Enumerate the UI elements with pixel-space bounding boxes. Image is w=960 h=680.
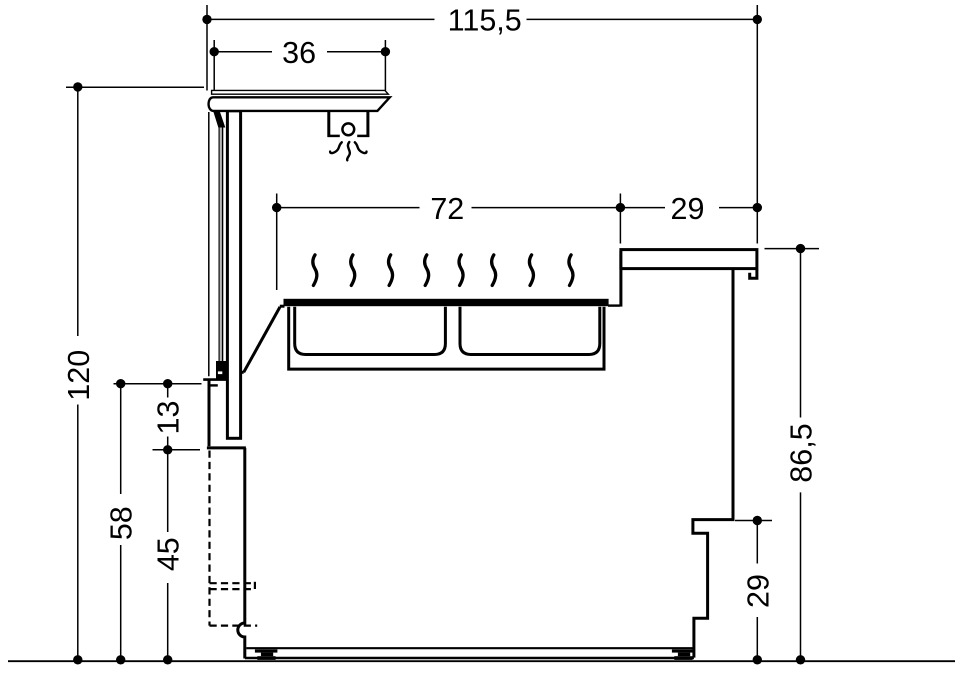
svg-text:29: 29: [741, 574, 775, 608]
svg-text:58: 58: [105, 506, 139, 540]
svg-text:45: 45: [152, 537, 186, 571]
svg-text:29: 29: [671, 192, 705, 226]
svg-text:13: 13: [152, 401, 186, 435]
svg-text:115,5: 115,5: [448, 3, 522, 37]
svg-text:72: 72: [430, 192, 464, 226]
svg-text:86,5: 86,5: [785, 423, 819, 482]
svg-text:120: 120: [62, 350, 96, 401]
svg-text:36: 36: [282, 36, 316, 70]
